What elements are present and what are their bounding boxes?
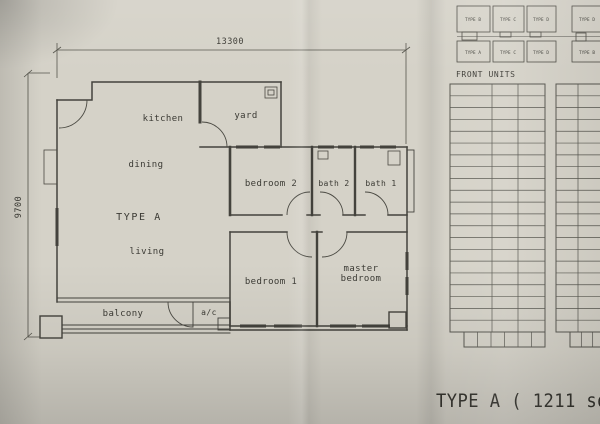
door-arcs xyxy=(59,100,388,327)
key-plan-unit-label: TYPE C xyxy=(500,17,516,23)
room-label-balcony: balcony xyxy=(103,309,144,319)
room-label-ac: a/c xyxy=(201,308,217,317)
dimension-lines xyxy=(24,43,410,340)
unit-stack-grid-left xyxy=(450,84,545,332)
ground-cells-left xyxy=(464,332,545,347)
plan-walls xyxy=(40,82,414,333)
front-units-label: FRONT UNITS xyxy=(456,70,516,79)
key-plan-unit-label: TYPE C xyxy=(500,50,516,56)
dimension-height-label: 9700 xyxy=(14,196,24,218)
key-plan-unit-label: TYPE B xyxy=(579,50,595,56)
room-label-bedroom2: bedroom 2 xyxy=(245,179,297,189)
key-plan-unit-label: TYPE D xyxy=(533,50,549,56)
room-label-bath2: bath 2 xyxy=(318,179,349,188)
room-label-bedroom1: bedroom 1 xyxy=(245,277,297,287)
unit-type-label: TYPE A xyxy=(116,212,162,223)
key-plan-unit-label: TYPE D xyxy=(579,17,595,23)
key-plan-unit-label: TYPE A xyxy=(465,50,481,56)
room-label-kitchen: kitchen xyxy=(143,114,184,124)
dimension-width-label: 13300 xyxy=(216,37,244,47)
key-plan-unit-label: TYPE D xyxy=(533,17,549,23)
room-label-yard: yard xyxy=(234,111,257,121)
room-label-living: living xyxy=(130,247,165,257)
photographed-floor-plan-sheet: 13300 9700 xyxy=(0,0,600,424)
room-label-master-line1: master xyxy=(344,264,379,274)
key-plan-unit-label: TYPE B xyxy=(465,17,481,23)
floor-plan-drawing: 13300 9700 xyxy=(0,0,600,424)
room-label-bath1: bath 1 xyxy=(365,179,396,188)
ground-cells-right xyxy=(570,332,600,347)
unit-stack-grid-right xyxy=(556,84,600,332)
room-label-master-line2: bedroom xyxy=(341,274,382,284)
room-label-dining: dining xyxy=(129,160,164,170)
fixtures xyxy=(44,87,400,184)
sheet-title-caption: TYPE A ( 1211 sq xyxy=(436,390,600,412)
